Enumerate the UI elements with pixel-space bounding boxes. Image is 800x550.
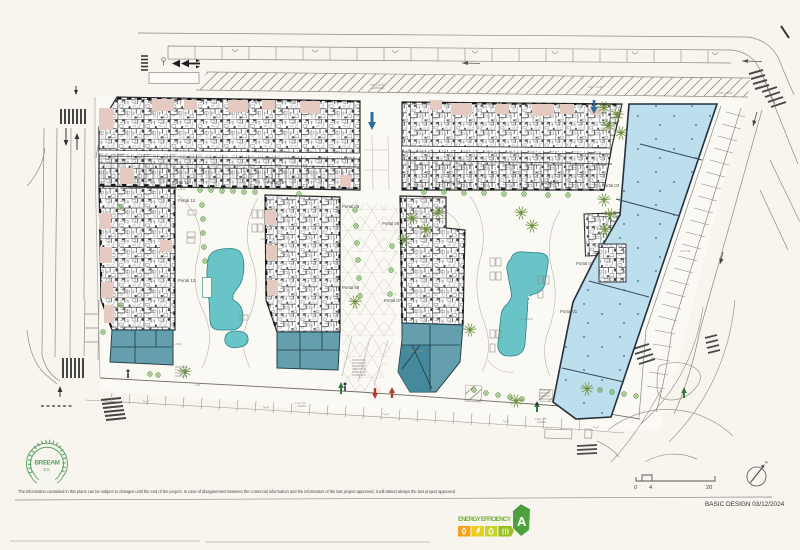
svg-text:ES: ES <box>44 467 50 472</box>
svg-text:0.00 + 15.00: 0.00 + 15.00 <box>519 318 533 321</box>
svg-text:Portal 03: Portal 03 <box>602 183 620 188</box>
svg-text:2.4+7.30: 2.4+7.30 <box>680 249 691 253</box>
svg-text:0.00 + 15.00: 0.00 + 15.00 <box>268 188 282 191</box>
svg-text:0.00 + 15.00: 0.00 + 15.00 <box>410 350 424 353</box>
svg-text:Portal 01: Portal 01 <box>560 309 578 314</box>
svg-text:Portal 07: Portal 07 <box>384 298 402 303</box>
svg-text:ENERGY EFFICIENCY: ENERGY EFFICIENCY <box>458 516 512 523</box>
svg-text:Portal 09: Portal 09 <box>342 204 360 209</box>
svg-text:+1.00 + 15.00: +1.00 + 15.00 <box>260 238 275 241</box>
svg-text:BASIC DESIGN 03/12/2024: BASIC DESIGN 03/12/2024 <box>705 501 785 508</box>
svg-text:2.50 + 10.00: 2.50 + 10.00 <box>588 85 603 89</box>
svg-text:A: A <box>517 514 527 529</box>
svg-text:Portal 02: Portal 02 <box>576 261 594 266</box>
svg-text:Portal 06: Portal 06 <box>382 221 400 226</box>
svg-text:4.00: 4.00 <box>195 383 201 387</box>
svg-text:CARRIL: CARRIL <box>537 420 547 424</box>
svg-text:ENTRADA: ENTRADA <box>372 86 385 90</box>
svg-text:0: 0 <box>634 485 637 491</box>
svg-text:Portal 10: Portal 10 <box>267 180 285 185</box>
svg-text:4: 4 <box>649 485 652 491</box>
svg-text:0.00 + 15.00: 0.00 + 15.00 <box>172 188 186 191</box>
svg-text:Portal 04: Portal 04 <box>541 180 559 185</box>
svg-text:Portal 13: Portal 13 <box>178 278 196 283</box>
svg-text:BREEAM: BREEAM <box>35 460 61 467</box>
svg-text:Portal 11: Portal 11 <box>172 180 189 185</box>
svg-text:20: 20 <box>706 485 712 491</box>
svg-text:Portal 08: Portal 08 <box>342 285 360 290</box>
svg-text:N: N <box>765 461 768 465</box>
svg-text:2.50 + 10.00: 2.50 + 10.00 <box>718 91 733 95</box>
svg-text:0.00 + 15.00: 0.00 + 15.00 <box>445 188 459 191</box>
svg-text:The information contained in t: The information contained in this plans … <box>18 489 456 494</box>
svg-text:Portal 05: Portal 05 <box>444 180 462 185</box>
svg-text:Portal 12: Portal 12 <box>178 198 196 203</box>
svg-text:CARRIL: CARRIL <box>297 404 307 408</box>
svg-text:0.00 + 15.00: 0.00 + 15.00 <box>168 343 182 346</box>
